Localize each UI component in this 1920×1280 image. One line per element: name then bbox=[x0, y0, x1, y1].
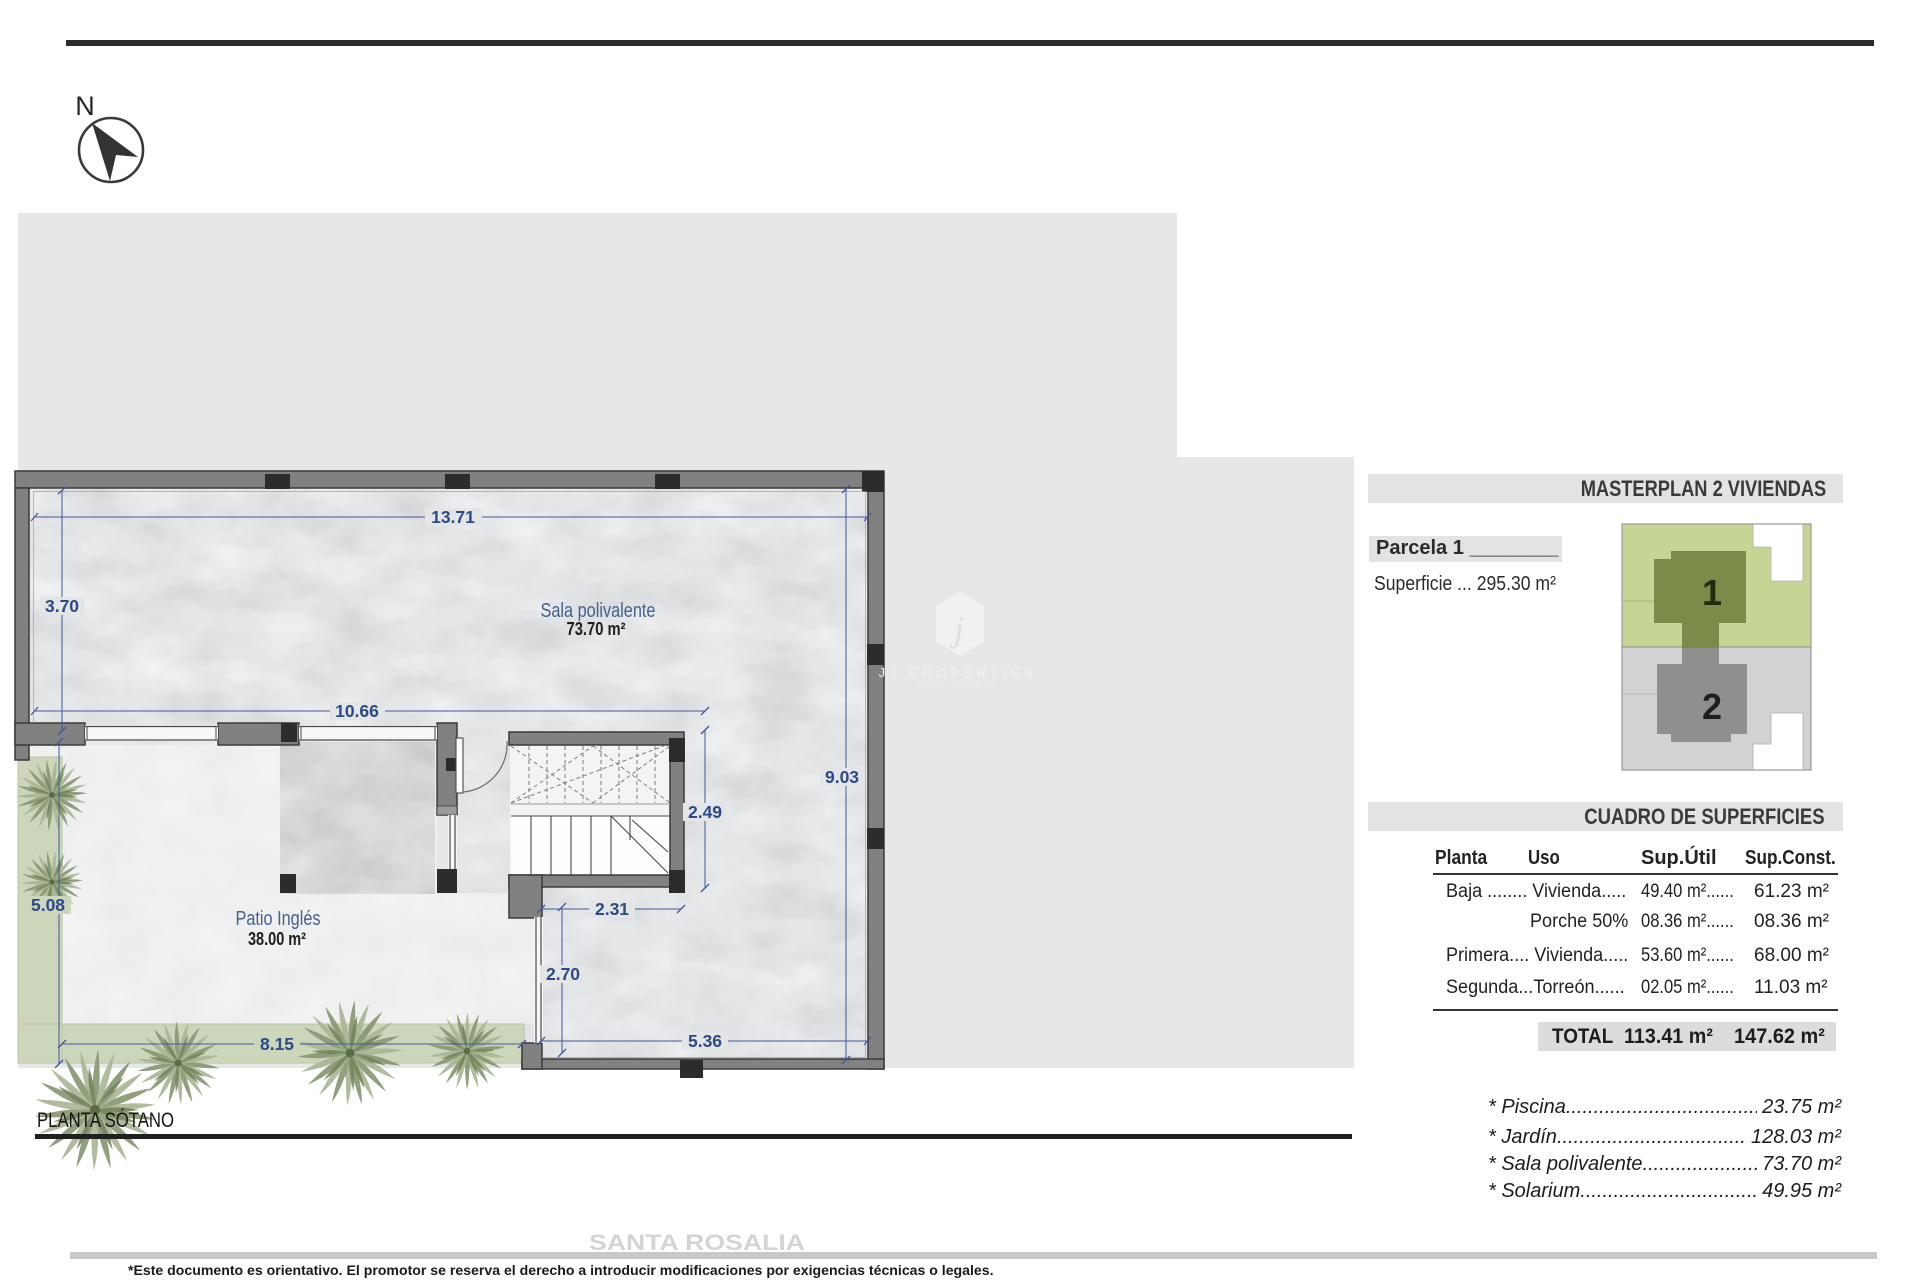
svg-text:9.03: 9.03 bbox=[825, 767, 859, 787]
svg-text:8.15: 8.15 bbox=[260, 1034, 294, 1054]
svg-text:2.70: 2.70 bbox=[546, 964, 580, 984]
svg-text:2: 2 bbox=[1702, 686, 1722, 727]
svg-text:Patio Inglés: Patio Inglés bbox=[236, 908, 321, 930]
svg-text:N: N bbox=[75, 91, 95, 121]
svg-text:PLANTA SÓTANO: PLANTA SÓTANO bbox=[37, 1109, 174, 1132]
svg-text:SANTA ROSALIA: SANTA ROSALIA bbox=[589, 1230, 805, 1255]
svg-text:REAL ESTATE: REAL ESTATE bbox=[918, 682, 997, 689]
svg-text:5.08: 5.08 bbox=[31, 895, 65, 915]
svg-text:3.70: 3.70 bbox=[45, 596, 79, 616]
svg-text:2.31: 2.31 bbox=[595, 899, 629, 919]
svg-text:13.71: 13.71 bbox=[431, 507, 475, 527]
svg-text:10.66: 10.66 bbox=[335, 701, 379, 721]
svg-text:5.36: 5.36 bbox=[688, 1031, 722, 1051]
svg-text:2.49: 2.49 bbox=[688, 802, 722, 822]
svg-text:73.70 m²: 73.70 m² bbox=[567, 619, 626, 639]
svg-text:1: 1 bbox=[1702, 572, 1722, 613]
svg-text:38.00 m²: 38.00 m² bbox=[248, 929, 306, 949]
svg-text:JJ PROPERTIES: JJ PROPERTIES bbox=[879, 665, 1038, 680]
